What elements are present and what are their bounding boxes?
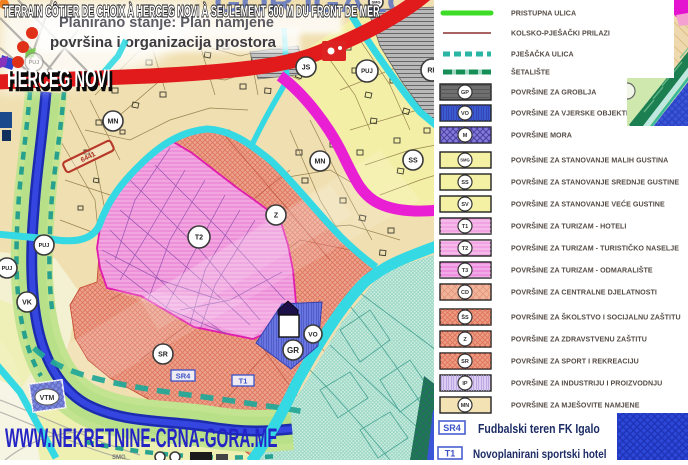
svg-text:T1: T1 xyxy=(445,449,456,459)
svg-text:POVRŠINE ZA ZDRAVSTVENU ZAŠTIT: POVRŠINE ZA ZDRAVSTVENU ZAŠTITU xyxy=(511,335,647,344)
svg-text:KOLSKO-PJEŠAČKI PRILAZI: KOLSKO-PJEŠAČKI PRILAZI xyxy=(511,29,610,38)
svg-text:PRISTUPNA ULICA: PRISTUPNA ULICA xyxy=(511,10,576,18)
svg-text:PUJ: PUJ xyxy=(361,69,373,75)
svg-text:T2: T2 xyxy=(462,246,468,252)
svg-text:POVRŠINE ZA TURIZAM - ODMARALI: POVRŠINE ZA TURIZAM - ODMARALIŠTE xyxy=(511,266,653,275)
svg-text:POVRŠINE ZA INDUSTRIJU I PROIZ: POVRŠINE ZA INDUSTRIJU I PROIZVODNJU xyxy=(511,379,662,388)
svg-text:POVRŠINE MORA: POVRŠINE MORA xyxy=(511,131,572,140)
svg-text:POVRŠINE ZA STANOVANJE VEĆE GU: POVRŠINE ZA STANOVANJE VEĆE GUSTINE xyxy=(511,200,665,209)
svg-text:MN: MN xyxy=(108,119,119,126)
svg-text:ŠETALIŠTE: ŠETALIŠTE xyxy=(511,68,550,77)
svg-text:ŠS: ŠS xyxy=(461,313,469,321)
svg-text:T1: T1 xyxy=(239,377,248,386)
svg-text:SS: SS xyxy=(461,180,469,186)
svg-text:T2: T2 xyxy=(195,235,203,242)
svg-text:VO: VO xyxy=(308,331,317,338)
svg-text:POVRŠINE ZA GROBLJA: POVRŠINE ZA GROBLJA xyxy=(511,88,596,97)
svg-text:PUJ: PUJ xyxy=(2,266,13,272)
svg-text:VO: VO xyxy=(461,111,470,117)
svg-text:M: M xyxy=(463,133,468,139)
svg-text:POVRŠINE ZA TURIZAM - TURISTIČ: POVRŠINE ZA TURIZAM - TURISTIČKO NASELJE xyxy=(511,244,679,253)
svg-text:IP: IP xyxy=(462,381,468,387)
svg-text:SMG: SMG xyxy=(112,455,126,460)
svg-text:HERCEG NOVI: HERCEG NOVI xyxy=(7,64,111,92)
svg-text:Fudbalski teren FK Igalo: Fudbalski teren FK Igalo xyxy=(478,423,600,436)
svg-text:MN: MN xyxy=(315,159,326,166)
svg-text:PUJ: PUJ xyxy=(39,243,50,249)
svg-text:T1: T1 xyxy=(462,224,468,230)
svg-text:GR: GR xyxy=(287,346,299,355)
svg-text:MN: MN xyxy=(461,403,470,409)
svg-text:POVRŠINE ZA MJEŠOVITE NAMJENE: POVRŠINE ZA MJEŠOVITE NAMJENE xyxy=(511,401,640,410)
svg-text:SMG: SMG xyxy=(460,158,470,163)
svg-text:SV: SV xyxy=(461,202,469,208)
svg-text:POVRŠINE ZA TURIZAM - HOTELI: POVRŠINE ZA TURIZAM - HOTELI xyxy=(511,222,626,231)
svg-text:SR4: SR4 xyxy=(176,372,191,381)
svg-text:površina i organizacija prosto: površina i organizacija prostora xyxy=(50,34,277,51)
svg-text:CD: CD xyxy=(461,290,469,296)
svg-text:POVRŠINE ZA VJERSKE OBJEKTE: POVRŠINE ZA VJERSKE OBJEKTE xyxy=(511,109,631,118)
svg-text:SR: SR xyxy=(158,352,168,359)
svg-text:Novoplanirani sportski hotel: Novoplanirani sportski hotel xyxy=(473,448,606,460)
svg-text:POVRŠINE ZA SPORT I REKREACIJU: POVRŠINE ZA SPORT I REKREACIJU xyxy=(511,357,639,366)
svg-text:SS: SS xyxy=(408,158,418,165)
svg-text:POVRŠINE ZA STANOVANJE SREDNJE: POVRŠINE ZA STANOVANJE SREDNJE GUSTINE xyxy=(511,178,679,187)
svg-text:SR4: SR4 xyxy=(443,423,461,433)
svg-text:SR: SR xyxy=(461,359,469,365)
svg-text:T3: T3 xyxy=(462,268,468,274)
svg-text:JS: JS xyxy=(302,65,311,72)
svg-text:VK: VK xyxy=(22,300,32,307)
svg-text:Z: Z xyxy=(274,213,279,220)
svg-text:PJEŠAČKA ULICA: PJEŠAČKA ULICA xyxy=(511,50,574,59)
svg-text:VTM: VTM xyxy=(40,395,55,402)
svg-text:POVRŠINE ZA CENTRALNE DJELATNO: POVRŠINE ZA CENTRALNE DJELATNOSTI xyxy=(511,288,657,297)
svg-text:TERRAIN CÔTIER DE CHOIX À HERC: TERRAIN CÔTIER DE CHOIX À HERCEG NOVI À … xyxy=(3,0,380,20)
svg-text:WWW.NEKRETNINE-CRNA-GORA.ME: WWW.NEKRETNINE-CRNA-GORA.ME xyxy=(5,422,277,453)
svg-text:POVRŠINE ZA ŠKOLSTVO I SOCIJAL: POVRŠINE ZA ŠKOLSTVO I SOCIJALNU ZAŠTITU xyxy=(511,313,681,322)
svg-text:POVRŠINE ZA STANOVANJE MALIH G: POVRŠINE ZA STANOVANJE MALIH GUSTINA xyxy=(511,156,668,165)
svg-text:GP: GP xyxy=(461,90,469,96)
